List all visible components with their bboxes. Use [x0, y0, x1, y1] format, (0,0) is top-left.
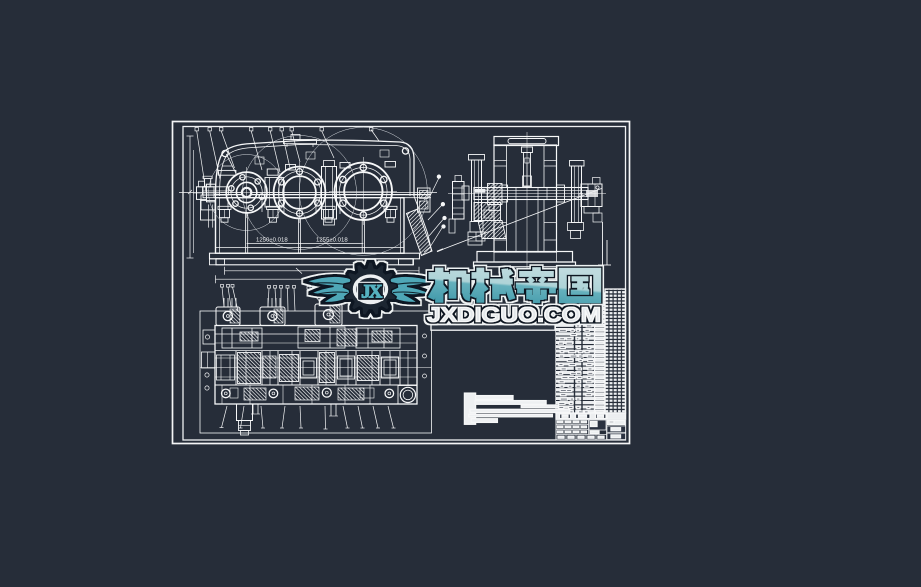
svg-text:JX: JX	[361, 281, 383, 302]
svg-text:1255±0.018: 1255±0.018	[316, 237, 348, 244]
svg-text:1250±0.018: 1250±0.018	[256, 237, 288, 244]
svg-text:JXDIGUO.COM: JXDIGUO.COM	[427, 303, 601, 326]
